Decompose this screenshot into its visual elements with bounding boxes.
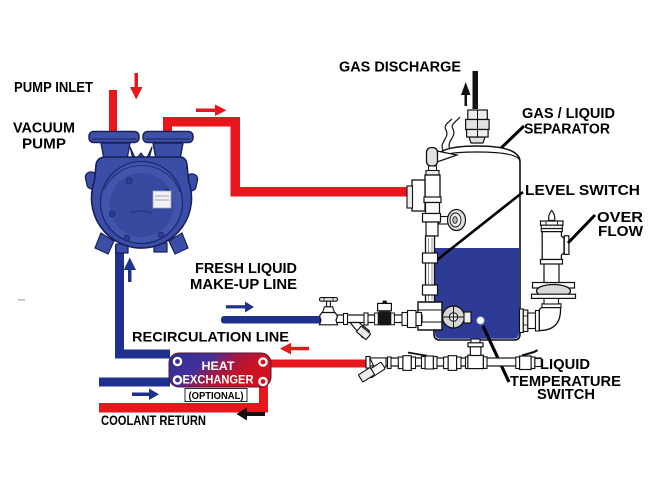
- svg-text:HEAT: HEAT: [202, 359, 236, 373]
- svg-text:MAKE-UP LINE: MAKE-UP LINE: [190, 277, 297, 293]
- svg-text:GAS / LIQUID: GAS / LIQUID: [522, 106, 615, 122]
- svg-text:COOLANT RETURN: COOLANT RETURN: [101, 412, 206, 428]
- svg-text:GAS DISCHARGE: GAS DISCHARGE: [339, 60, 461, 76]
- svg-text:LEVEL SWITCH: LEVEL SWITCH: [525, 183, 640, 199]
- svg-text:PUMP: PUMP: [22, 137, 66, 153]
- svg-text:RECIRCULATION LINE: RECIRCULATION LINE: [132, 329, 289, 345]
- svg-text:LIQUID: LIQUID: [540, 357, 590, 373]
- svg-text:SEPARATOR: SEPARATOR: [524, 122, 611, 138]
- svg-text:(OPTIONAL): (OPTIONAL): [189, 390, 244, 402]
- svg-text:SWITCH: SWITCH: [537, 387, 595, 403]
- svg-text:FRESH LIQUID: FRESH LIQUID: [195, 261, 297, 277]
- svg-text:FLOW: FLOW: [598, 224, 643, 240]
- svg-text:PUMP INLET: PUMP INLET: [14, 80, 93, 96]
- svg-text:VACUUM: VACUUM: [13, 121, 75, 137]
- svg-text:EXCHANGER: EXCHANGER: [183, 373, 254, 387]
